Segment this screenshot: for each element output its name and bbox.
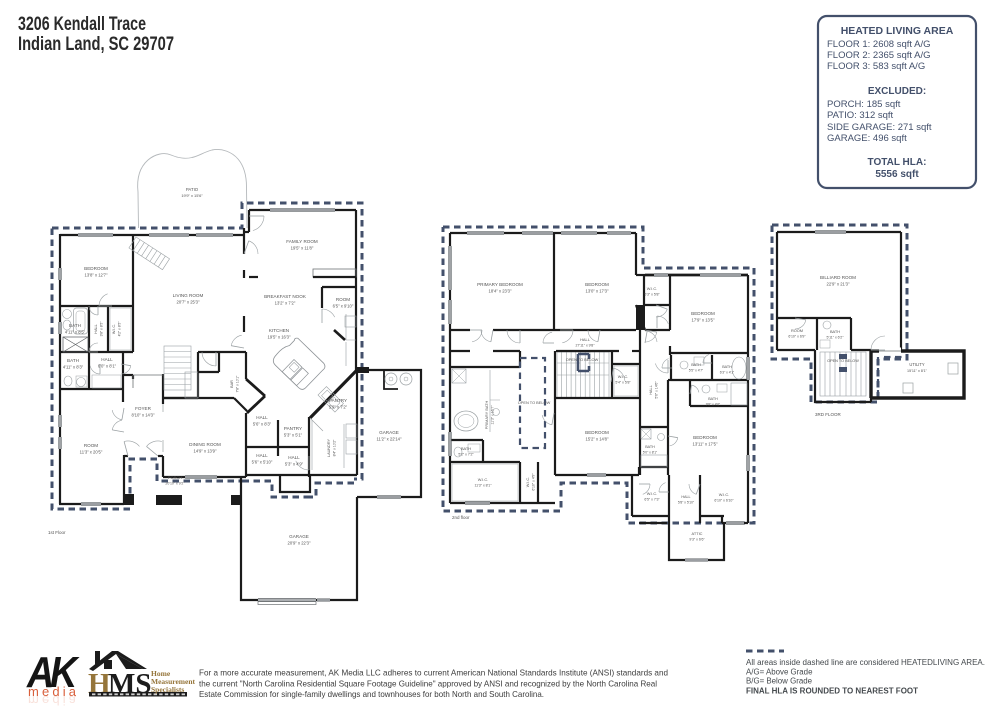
svg-text:11'3" x 8'1": 11'3" x 8'1" <box>475 484 493 488</box>
svg-text:4'2" x 8'5": 4'2" x 8'5" <box>118 321 122 337</box>
svg-text:PORCH: 185 sqft: PORCH: 185 sqft <box>827 99 901 110</box>
svg-text:5'3" x 5'1": 5'3" x 5'1" <box>284 432 303 437</box>
svg-text:PANTRY: PANTRY <box>329 398 347 403</box>
svg-text:6'5" x 7'3": 6'5" x 7'3" <box>644 498 660 502</box>
svg-text:BEDROOM: BEDROOM <box>691 311 715 316</box>
svg-text:3RD FLOOR: 3RD FLOOR <box>815 412 842 417</box>
svg-text:All areas inside dashed line a: All areas inside dashed line are conside… <box>746 658 985 667</box>
svg-text:5'5" x 4'7": 5'5" x 4'7" <box>689 368 704 372</box>
svg-text:ATTIC: ATTIC <box>692 531 703 536</box>
svg-text:W.I.C.: W.I.C. <box>112 324 116 334</box>
svg-text:BATH: BATH <box>645 445 655 449</box>
svg-text:HALL: HALL <box>94 324 98 334</box>
svg-text:BILLIARD ROOM: BILLIARD ROOM <box>820 275 856 280</box>
svg-text:6'0" x 8'1": 6'0" x 8'1" <box>98 363 117 368</box>
svg-text:BATH: BATH <box>830 329 840 334</box>
svg-text:OPEN TO BELOW: OPEN TO BELOW <box>827 359 859 363</box>
svg-text:20'10" x 9'2": 20'10" x 9'2" <box>165 482 185 486</box>
svg-text:HALL: HALL <box>256 453 268 458</box>
svg-text:5556 sqft: 5556 sqft <box>875 169 919 180</box>
svg-text:BEDROOM: BEDROOM <box>585 282 609 287</box>
svg-text:ROOM: ROOM <box>84 443 98 448</box>
svg-text:BEDROOM: BEDROOM <box>693 435 717 440</box>
svg-text:GARAGE: 496 sqft: GARAGE: 496 sqft <box>827 133 907 144</box>
svg-text:PRIMARY BATH: PRIMARY BATH <box>484 400 489 429</box>
svg-text:17'9" x 13'5": 17'9" x 13'5" <box>692 317 715 322</box>
svg-text:5'11" x 6'2": 5'11" x 6'2" <box>827 336 845 340</box>
svg-text:HALL: HALL <box>648 384 653 395</box>
svg-text:7'8" x 10'1": 7'8" x 10'1" <box>236 375 240 393</box>
svg-text:ROOM: ROOM <box>336 297 350 302</box>
svg-text:HALL: HALL <box>256 415 268 420</box>
svg-text:BATH: BATH <box>69 323 81 328</box>
svg-text:8'4" x 10'2": 8'4" x 10'2" <box>333 439 337 457</box>
svg-text:BREAKFAST NOOK: BREAKFAST NOOK <box>264 294 307 299</box>
svg-text:5'3" x 5'8": 5'3" x 5'8" <box>644 293 660 297</box>
svg-text:13'2" x 7'2": 13'2" x 7'2" <box>275 300 296 305</box>
svg-text:19'5" x 16'3": 19'5" x 16'3" <box>268 334 291 339</box>
svg-text:BATH: BATH <box>691 363 701 367</box>
svg-text:6'10" x 4'9": 6'10" x 4'9" <box>532 473 536 491</box>
svg-text:15'2" x 14'8": 15'2" x 14'8" <box>586 436 609 441</box>
svg-text:4'11" x 8'3": 4'11" x 8'3" <box>63 364 84 369</box>
svg-text:BATH: BATH <box>708 397 718 401</box>
svg-text:EXCLUDED:: EXCLUDED: <box>868 86 926 97</box>
svg-text:5'8" x 5'10": 5'8" x 5'10" <box>678 500 695 504</box>
svg-text:HALL: HALL <box>288 455 300 460</box>
svg-text:5'3" x 4'9": 5'3" x 4'9" <box>285 461 304 466</box>
svg-text:HEATED LIVING AREA: HEATED LIVING AREA <box>841 25 954 37</box>
svg-text:GARAGE: GARAGE <box>289 534 309 539</box>
svg-text:W.I.C.: W.I.C. <box>647 286 658 291</box>
svg-text:Specialists: Specialists <box>151 685 184 694</box>
svg-text:11'2" x 22'14": 11'2" x 22'14" <box>377 436 402 441</box>
svg-text:9'8" x 4'6": 9'8" x 4'6" <box>706 402 721 406</box>
svg-text:20'7" x 25'3": 20'7" x 25'3" <box>177 299 200 304</box>
svg-text:PATIO: PATIO <box>186 187 199 192</box>
svg-text:5'6" x 14'6": 5'6" x 14'6" <box>655 381 659 399</box>
svg-text:A/G= Above Grade: A/G= Above Grade <box>746 668 813 677</box>
svg-text:BEDROOM: BEDROOM <box>585 430 609 435</box>
svg-text:LIVING ROOM: LIVING ROOM <box>173 293 204 298</box>
svg-text:LAUNDRY: LAUNDRY <box>327 438 331 457</box>
svg-text:FINAL HLA IS ROUNDED TO NEARES: FINAL HLA IS ROUNDED TO NEAREST FOOT <box>746 687 918 696</box>
svg-text:GARAGE: GARAGE <box>379 430 399 435</box>
svg-text:the current "North Carolina Re: the current "North Carolina Residential … <box>199 679 657 689</box>
svg-text:FLOOR 2: 2365 sqft A/G: FLOOR 2: 2365 sqft A/G <box>827 50 931 61</box>
svg-text:W.I.C.: W.I.C. <box>719 492 730 497</box>
svg-text:BATH: BATH <box>722 365 732 369</box>
svg-text:9'3" x 6'6": 9'3" x 6'6" <box>689 538 705 542</box>
svg-text:3'8" x 8'5": 3'8" x 8'5" <box>100 321 104 337</box>
svg-text:UTILITY: UTILITY <box>909 362 925 367</box>
svg-text:13'11" x 17'5": 13'11" x 17'5" <box>693 441 718 446</box>
svg-text:11'3" x 16'7": 11'3" x 16'7" <box>491 405 495 425</box>
svg-text:W.I.C.: W.I.C. <box>618 374 629 379</box>
svg-text:3206 Kendall Trace: 3206 Kendall Trace <box>18 14 146 35</box>
svg-text:15'11" x 8'1": 15'11" x 8'1" <box>907 369 928 373</box>
svg-text:FLOOR 3: 583 sqft A/G: FLOOR 3: 583 sqft A/G <box>827 61 925 72</box>
svg-text:HALL: HALL <box>681 495 690 499</box>
svg-text:11'3" x 20'5": 11'3" x 20'5" <box>80 449 103 454</box>
svg-text:14'9" x 13'9": 14'9" x 13'9" <box>194 448 217 453</box>
svg-text:6'10" x 6'9": 6'10" x 6'9" <box>788 335 806 339</box>
svg-text:5'6" x 8'3": 5'6" x 8'3" <box>253 421 272 426</box>
svg-text:6'5" x 9'10": 6'5" x 9'10" <box>333 303 354 308</box>
svg-text:20'9" x 22'3": 20'9" x 22'3" <box>288 540 311 545</box>
svg-text:For a more accurate measuremen: For a more accurate measurement, AK Medi… <box>199 668 668 678</box>
svg-text:B/G= Below Grade: B/G= Below Grade <box>746 677 813 686</box>
svg-text:5'4" x 5'8": 5'4" x 5'8" <box>615 381 631 385</box>
svg-text:13'8" x 12'7": 13'8" x 12'7" <box>85 272 108 277</box>
svg-text:HALL: HALL <box>580 337 591 342</box>
svg-text:27'11" x 9'8": 27'11" x 9'8" <box>576 344 596 348</box>
svg-text:5'0" x 8'1": 5'0" x 8'1" <box>643 450 658 454</box>
svg-text:4'11" x 8'5": 4'11" x 8'5" <box>65 329 86 334</box>
svg-text:6'10" x 6'10": 6'10" x 6'10" <box>714 499 734 503</box>
svg-text:ROOM: ROOM <box>791 328 803 333</box>
svg-text:DINING ROOM: DINING ROOM <box>189 442 221 447</box>
svg-text:2nd floor: 2nd floor <box>452 515 470 520</box>
svg-text:18'4" x 23'3": 18'4" x 23'3" <box>489 288 512 293</box>
svg-text:TOTAL HLA:: TOTAL HLA: <box>868 157 927 168</box>
svg-text:BATH: BATH <box>67 358 79 363</box>
svg-text:13'0" x 17'3": 13'0" x 17'3" <box>586 288 609 293</box>
svg-text:BATH: BATH <box>461 446 471 451</box>
svg-text:BAR: BAR <box>230 380 234 388</box>
svg-text:KITCHEN: KITCHEN <box>269 328 289 333</box>
svg-text:1st Floor: 1st Floor <box>48 530 66 535</box>
svg-text:5'2" x 7'2": 5'2" x 7'2" <box>458 453 474 457</box>
svg-text:FAMILY ROOM: FAMILY ROOM <box>286 239 318 244</box>
svg-text:5'6" x 5'10": 5'6" x 5'10" <box>252 459 273 464</box>
svg-text:PORCH: PORCH <box>168 475 182 480</box>
svg-text:5'9" x 7'2": 5'9" x 7'2" <box>329 404 348 409</box>
svg-text:OPEN TO BELOW: OPEN TO BELOW <box>518 400 551 405</box>
svg-text:OPEN TO BELOW: OPEN TO BELOW <box>566 357 599 362</box>
svg-text:PANTRY: PANTRY <box>284 426 302 431</box>
svg-text:W.I.C.: W.I.C. <box>478 477 489 482</box>
svg-text:HALL: HALL <box>101 357 113 362</box>
svg-text:Indian Land, SC 29707: Indian Land, SC 29707 <box>18 34 174 55</box>
svg-text:W.I.C.: W.I.C. <box>525 477 530 488</box>
svg-text:22'9" x 21'3": 22'9" x 21'3" <box>827 281 850 286</box>
svg-text:SIDE GARAGE: 271 sqft: SIDE GARAGE: 271 sqft <box>827 122 932 133</box>
svg-text:19'9" x 15'6": 19'9" x 15'6" <box>181 193 203 198</box>
svg-text:8'10" x 14'3": 8'10" x 14'3" <box>132 412 155 417</box>
svg-text:BEDROOM: BEDROOM <box>84 266 108 271</box>
svg-text:6'3" x 4'1": 6'3" x 4'1" <box>720 370 735 374</box>
svg-text:PRIMARY BEDROOM: PRIMARY BEDROOM <box>477 282 523 287</box>
svg-text:FOYER: FOYER <box>135 406 152 411</box>
svg-text:19'5" x 11'8": 19'5" x 11'8" <box>291 245 314 250</box>
svg-text:FLOOR 1: 2608 sqft A/G: FLOOR 1: 2608 sqft A/G <box>827 39 931 50</box>
svg-text:PATIO: 312 sqft: PATIO: 312 sqft <box>827 110 894 121</box>
svg-text:W.I.C.: W.I.C. <box>647 491 658 496</box>
svg-text:media: media <box>28 693 79 707</box>
svg-text:Estate Commission for single-f: Estate Commission for single-family dwel… <box>199 689 544 699</box>
